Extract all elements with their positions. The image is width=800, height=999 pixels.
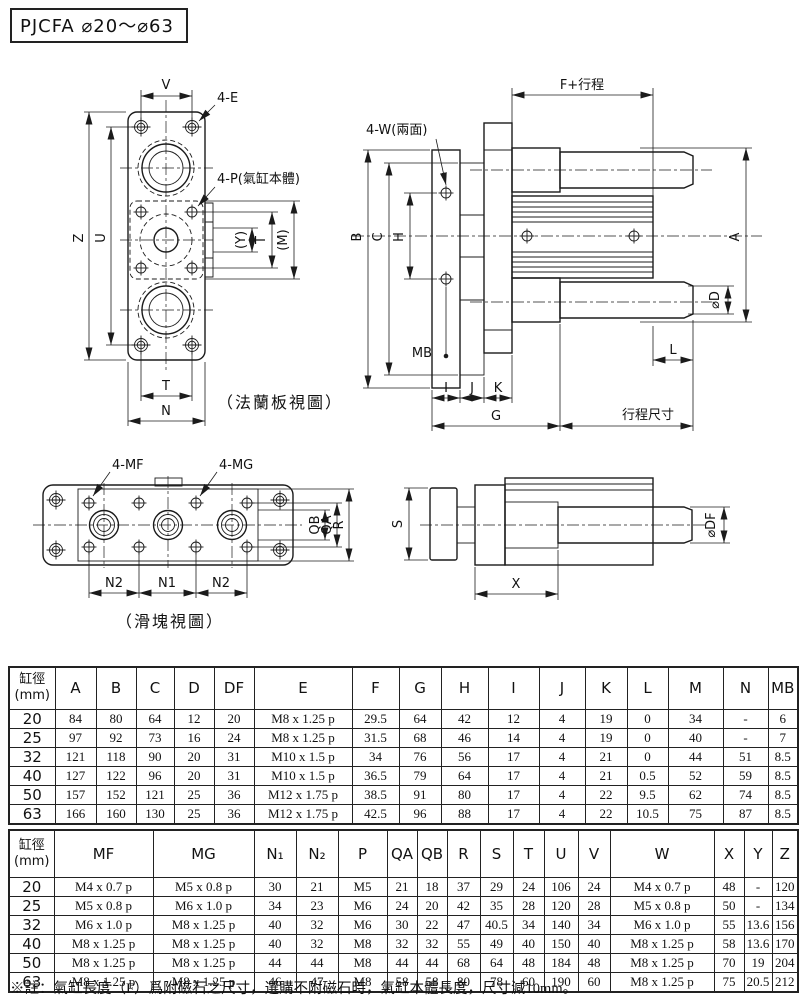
- dimension-value: 22: [585, 785, 627, 804]
- bore-value: 32: [9, 747, 55, 766]
- dimension-value: 10.5: [627, 804, 668, 824]
- dimension-value: 40: [254, 934, 296, 953]
- dimension-value: 8.5: [768, 766, 798, 785]
- dimension-value: 160: [96, 804, 136, 824]
- dimension-value: 25: [174, 785, 214, 804]
- dimension-value: 8.5: [768, 804, 798, 824]
- dimension-value: M8 x 1.25 p: [153, 934, 254, 953]
- dimension-value: M8 x 1.25 p: [153, 953, 254, 972]
- dimension-value: M10 x 1.5 p: [254, 747, 352, 766]
- dimension-value: 21: [585, 766, 627, 785]
- dimension-value: 40.5: [480, 915, 513, 934]
- dimension-value: M8: [338, 953, 387, 972]
- dimension-value: 31.5: [352, 728, 399, 747]
- dimension-value: M6 x 1.0 p: [54, 915, 153, 934]
- dimension-value: 50: [714, 896, 744, 915]
- dimension-value: 204: [772, 953, 798, 972]
- dimension-value: 68: [399, 728, 441, 747]
- column-header-10: U: [544, 830, 578, 877]
- dimension-value: 48: [513, 953, 544, 972]
- dim-label-j: J: [469, 381, 474, 396]
- dimension-value: 0: [627, 709, 668, 728]
- dimension-value: 120: [544, 896, 578, 915]
- dimension-value: -: [744, 896, 772, 915]
- column-header-6: QB: [417, 830, 447, 877]
- dimension-value: M5 x 0.8 p: [610, 896, 714, 915]
- dimension-value: 6: [768, 709, 798, 728]
- dimension-value: 88: [441, 804, 488, 824]
- dimension-value: 17: [488, 747, 539, 766]
- column-header-14: Y: [744, 830, 772, 877]
- column-header-4: P: [338, 830, 387, 877]
- flange-view-drawing: V 4-E Z U 4-P(氣缸本體) (Y) T (M): [72, 78, 343, 426]
- dimension-value: 21: [585, 747, 627, 766]
- column-header-14: N: [723, 667, 768, 709]
- dimension-value: 25: [174, 804, 214, 824]
- dimension-value: 184: [544, 953, 578, 972]
- dimension-value: 12: [488, 709, 539, 728]
- dimension-value: 96: [136, 766, 174, 785]
- column-header-3: D: [174, 667, 214, 709]
- label-4e: 4-E: [217, 91, 238, 106]
- dimension-value: -: [744, 877, 772, 896]
- dimension-value: 90: [136, 747, 174, 766]
- dimension-value: 52: [668, 766, 723, 785]
- dim-label-r: R: [332, 520, 347, 529]
- dimension-value: 4: [539, 785, 585, 804]
- dimension-value: 127: [55, 766, 96, 785]
- dim-label-z: Z: [72, 233, 87, 242]
- dimension-value: 49: [480, 934, 513, 953]
- dimension-value: 34: [578, 915, 610, 934]
- table-row: 208480641220M8 x 1.25 p29.5644212419034-…: [9, 709, 798, 728]
- column-header-13: M: [668, 667, 723, 709]
- dimension-value: 22: [417, 915, 447, 934]
- dimension-value: 134: [772, 896, 798, 915]
- dimension-value: 44: [417, 953, 447, 972]
- dimension-value: 91: [399, 785, 441, 804]
- dimension-value: 7: [768, 728, 798, 747]
- dimension-value: 37: [447, 877, 480, 896]
- column-header-1: B: [96, 667, 136, 709]
- dimension-value: 40: [578, 934, 610, 953]
- dimension-value: 170: [772, 934, 798, 953]
- dimension-value: 18: [417, 877, 447, 896]
- dimension-value: 96: [399, 804, 441, 824]
- dimension-value: 20: [214, 709, 254, 728]
- dimension-value: 20: [417, 896, 447, 915]
- dimension-value: 64: [136, 709, 174, 728]
- dimension-value: 73: [136, 728, 174, 747]
- dimension-value: 21: [387, 877, 417, 896]
- dim-label-a: A: [728, 232, 743, 241]
- dimension-value: 121: [136, 785, 174, 804]
- dimension-value: 0.5: [627, 766, 668, 785]
- dimension-value: 118: [96, 747, 136, 766]
- column-header-15: MB: [768, 667, 798, 709]
- dimension-value: 130: [136, 804, 174, 824]
- dimensions-table-1: 缸徑(mm)ABCDDFEFGHIJKLMNMB208480641220M8 x…: [8, 666, 799, 825]
- dimension-value: 140: [544, 915, 578, 934]
- dimension-value: M6: [338, 896, 387, 915]
- dim-label-x: X: [512, 577, 521, 592]
- dim-label-t-right: T: [254, 236, 269, 245]
- dimension-value: 70: [714, 953, 744, 972]
- dimension-value: 55: [447, 934, 480, 953]
- dimension-value: M8: [338, 934, 387, 953]
- dimension-value: 152: [96, 785, 136, 804]
- label-4mf: 4-MF: [112, 458, 144, 473]
- table-row: 501571521212536M12 x 1.75 p38.5918017422…: [9, 785, 798, 804]
- table-row: 259792731624M8 x 1.25 p31.5684614419040-…: [9, 728, 798, 747]
- bore-value: 25: [9, 728, 55, 747]
- dimension-value: 55: [714, 915, 744, 934]
- column-header-2: N₁: [254, 830, 296, 877]
- dimension-value: 16: [174, 728, 214, 747]
- dimension-value: 47: [447, 915, 480, 934]
- dimension-value: 44: [296, 953, 338, 972]
- dimension-value: 68: [447, 953, 480, 972]
- dimension-value: 30: [387, 915, 417, 934]
- dimension-value: 4: [539, 804, 585, 824]
- bore-value: 40: [9, 934, 54, 953]
- dimension-value: 80: [441, 785, 488, 804]
- bore-value: 25: [9, 896, 54, 915]
- dimension-value: 28: [578, 896, 610, 915]
- table-row: 20M4 x 0.7 pM5 x 0.8 p3021M5211837292410…: [9, 877, 798, 896]
- dimension-value: 29: [480, 877, 513, 896]
- dim-label-n1: N1: [158, 576, 176, 591]
- dimension-value: M8 x 1.25 p: [610, 972, 714, 992]
- dimension-value: 4: [539, 728, 585, 747]
- dimension-value: 34: [352, 747, 399, 766]
- dimension-value: 74: [723, 785, 768, 804]
- dim-label-k: K: [494, 381, 503, 396]
- dimension-value: 56: [441, 747, 488, 766]
- dimension-value: M6 x 1.0 p: [153, 896, 254, 915]
- dimension-value: 36.5: [352, 766, 399, 785]
- dimension-value: 79: [399, 766, 441, 785]
- label-4p: 4-P(氣缸本體): [217, 171, 300, 187]
- bore-value: 50: [9, 785, 55, 804]
- dim-label-u: U: [94, 233, 109, 243]
- column-header-0: A: [55, 667, 96, 709]
- dimension-value: M12 x 1.75 p: [254, 804, 352, 824]
- dimension-value: 75: [668, 804, 723, 824]
- dimension-value: 0: [627, 728, 668, 747]
- label-4w: 4-W(兩面): [366, 123, 427, 138]
- dimension-value: -: [723, 728, 768, 747]
- slider-side-view-drawing: S ⌀DF X: [391, 478, 730, 600]
- dimension-value: 22: [585, 804, 627, 824]
- column-header-3: N₂: [296, 830, 338, 877]
- dimension-value: 64: [441, 766, 488, 785]
- dimension-value: 19: [585, 728, 627, 747]
- bore-value: 20: [9, 877, 54, 896]
- dim-label-m: (M): [276, 229, 291, 250]
- dim-label-l: L: [669, 343, 677, 358]
- dimension-value: M5 x 0.8 p: [54, 896, 153, 915]
- dimension-value: 34: [668, 709, 723, 728]
- dimension-value: M8 x 1.25 p: [254, 728, 352, 747]
- dimension-value: 38.5: [352, 785, 399, 804]
- column-header-1: MG: [153, 830, 254, 877]
- table-row: 32121118902031M10 x 1.5 p347656174210445…: [9, 747, 798, 766]
- dimension-value: 24: [214, 728, 254, 747]
- footnote: ※註：氣缸長度（F）爲附磁石之尺寸，選購不附磁石時，氣缸本體長度，尺寸減10mm…: [10, 977, 577, 998]
- dimension-value: 40: [254, 915, 296, 934]
- dimension-value: 76: [399, 747, 441, 766]
- dim-label-d: ⌀D: [708, 291, 723, 309]
- dimension-value: 34: [513, 915, 544, 934]
- bore-diameter-header: 缸徑(mm): [9, 830, 54, 877]
- dim-label-df: ⌀DF: [704, 512, 719, 537]
- table-row: 50M8 x 1.25 pM8 x 1.25 p4444M84444686448…: [9, 953, 798, 972]
- dimension-value: 121: [55, 747, 96, 766]
- table-row: 631661601302536M12 x 1.75 p42.5968817422…: [9, 804, 798, 824]
- dimension-value: 17: [488, 804, 539, 824]
- dimension-value: 32: [296, 915, 338, 934]
- column-header-0: MF: [54, 830, 153, 877]
- dimension-value: M6 x 1.0 p: [610, 915, 714, 934]
- dimension-value: M12 x 1.75 p: [254, 785, 352, 804]
- dim-label-f-stroke: F+行程: [560, 78, 604, 93]
- dim-label-b: B: [350, 233, 365, 242]
- datasheet-page: PJCFA ⌀20～⌀63: [0, 0, 800, 999]
- dimension-value: 122: [96, 766, 136, 785]
- column-header-11: V: [578, 830, 610, 877]
- bore-value: 32: [9, 915, 54, 934]
- table-row: 40127122962031M10 x 1.5 p36.57964174210.…: [9, 766, 798, 785]
- bore-value: 40: [9, 766, 55, 785]
- column-header-15: Z: [772, 830, 798, 877]
- column-header-8: H: [441, 667, 488, 709]
- dimension-value: 19: [744, 953, 772, 972]
- dimension-value: 32: [387, 934, 417, 953]
- dimension-value: 44: [387, 953, 417, 972]
- dimension-value: 31: [214, 766, 254, 785]
- dimension-value: 8.5: [768, 785, 798, 804]
- dimension-value: 59: [723, 766, 768, 785]
- dimension-value: 12: [174, 709, 214, 728]
- dimension-value: M10 x 1.5 p: [254, 766, 352, 785]
- dimension-value: M8 x 1.25 p: [153, 915, 254, 934]
- dimension-value: 42: [441, 709, 488, 728]
- dimension-value: 20: [174, 766, 214, 785]
- dim-label-n2-right: N2: [212, 576, 230, 591]
- dimension-value: 87: [723, 804, 768, 824]
- table-row: 32M6 x 1.0 pM8 x 1.25 p4032M630224740.53…: [9, 915, 798, 934]
- dimension-value: 20.5: [744, 972, 772, 992]
- dimension-value: 97: [55, 728, 96, 747]
- flange-view-caption: （法蘭板視圖）: [217, 394, 343, 412]
- label-4mg: 4-MG: [219, 458, 253, 473]
- dimension-value: 120: [772, 877, 798, 896]
- dim-label-h: H: [392, 232, 407, 242]
- dimension-value: 8.5: [768, 747, 798, 766]
- dimension-value: 42: [447, 896, 480, 915]
- dimension-value: 17: [488, 785, 539, 804]
- slider-view-caption: （滑塊視圖）: [116, 613, 224, 631]
- dimension-value: 64: [480, 953, 513, 972]
- dimension-value: 64: [399, 709, 441, 728]
- dim-label-stroke-size: 行程尺寸: [622, 408, 674, 423]
- dimension-value: 23: [296, 896, 338, 915]
- column-header-9: T: [513, 830, 544, 877]
- dimension-value: M8 x 1.25 p: [54, 953, 153, 972]
- dimension-value: 84: [55, 709, 96, 728]
- dimension-value: 58: [714, 934, 744, 953]
- dimension-value: 14: [488, 728, 539, 747]
- dim-label-y: (Y): [234, 231, 249, 249]
- dimension-value: 35: [480, 896, 513, 915]
- dimension-value: -: [723, 709, 768, 728]
- dimension-value: 4: [539, 747, 585, 766]
- dimension-value: 40: [668, 728, 723, 747]
- dimensions-table-2: 缸徑(mm)MFMGN₁N₂PQAQBRSTUVWXYZ20M4 x 0.7 p…: [8, 829, 799, 993]
- dimension-value: 17: [488, 766, 539, 785]
- dimension-value: 24: [513, 877, 544, 896]
- dimension-value: 24: [578, 877, 610, 896]
- dimension-value: 32: [296, 934, 338, 953]
- dimension-value: 13.6: [744, 915, 772, 934]
- dimension-value: 166: [55, 804, 96, 824]
- dimension-value: 9.5: [627, 785, 668, 804]
- table-row: 40M8 x 1.25 pM8 x 1.25 p4032M83232554940…: [9, 934, 798, 953]
- bore-value: 50: [9, 953, 54, 972]
- column-header-5: E: [254, 667, 352, 709]
- column-header-7: R: [447, 830, 480, 877]
- dim-label-g: G: [491, 409, 501, 424]
- dimension-value: 42.5: [352, 804, 399, 824]
- dimension-value: 62: [668, 785, 723, 804]
- dim-label-v: V: [162, 78, 171, 93]
- dimension-value: M6: [338, 915, 387, 934]
- dim-label-s: S: [391, 520, 406, 528]
- dimension-value: 36: [214, 785, 254, 804]
- dimension-value: 29.5: [352, 709, 399, 728]
- dimension-value: 60: [578, 972, 610, 992]
- column-header-7: G: [399, 667, 441, 709]
- dimension-value: 13.6: [744, 934, 772, 953]
- dimension-value: 0: [627, 747, 668, 766]
- dimension-value: M4 x 0.7 p: [54, 877, 153, 896]
- dimension-value: 40: [513, 934, 544, 953]
- dimension-value: 48: [714, 877, 744, 896]
- dimension-value: 44: [668, 747, 723, 766]
- dimension-value: 46: [441, 728, 488, 747]
- column-header-6: F: [352, 667, 399, 709]
- dimension-value: M8 x 1.25 p: [54, 934, 153, 953]
- table-row: 25M5 x 0.8 pM6 x 1.0 p3423M6242042352812…: [9, 896, 798, 915]
- dimension-value: M8 x 1.25 p: [254, 709, 352, 728]
- dimension-value: 21: [296, 877, 338, 896]
- dimension-value: 32: [417, 934, 447, 953]
- dimension-value: 156: [772, 915, 798, 934]
- column-header-4: DF: [214, 667, 254, 709]
- column-header-12: W: [610, 830, 714, 877]
- dimension-value: 92: [96, 728, 136, 747]
- dimension-value: 30: [254, 877, 296, 896]
- dim-label-t-bottom: T: [161, 379, 170, 394]
- dimension-value: 28: [513, 896, 544, 915]
- column-header-9: I: [488, 667, 539, 709]
- bore-value: 20: [9, 709, 55, 728]
- dimension-value: 36: [214, 804, 254, 824]
- dimension-value: M8 x 1.25 p: [610, 953, 714, 972]
- column-header-5: QA: [387, 830, 417, 877]
- dimension-value: 20: [174, 747, 214, 766]
- bore-diameter-header: 缸徑(mm): [9, 667, 55, 709]
- dimension-value: 51: [723, 747, 768, 766]
- column-header-2: C: [136, 667, 174, 709]
- dimension-value: 24: [387, 896, 417, 915]
- dimension-value: 106: [544, 877, 578, 896]
- dimension-value: 157: [55, 785, 96, 804]
- dimension-value: 80: [96, 709, 136, 728]
- dimension-value: 34: [254, 896, 296, 915]
- dimension-value: M4 x 0.7 p: [610, 877, 714, 896]
- dim-label-i: I: [444, 381, 448, 396]
- dim-label-n2-left: N2: [105, 576, 123, 591]
- dimension-value: 150: [544, 934, 578, 953]
- side-view-drawing: F+行程 4-W(兩面) B C H A ⌀D MB: [350, 78, 762, 431]
- column-header-12: L: [627, 667, 668, 709]
- column-header-8: S: [480, 830, 513, 877]
- dimension-value: 48: [578, 953, 610, 972]
- dim-label-mb: MB: [412, 346, 432, 361]
- dimension-value: M5 x 0.8 p: [153, 877, 254, 896]
- dim-label-c: C: [371, 232, 386, 241]
- dimension-value: 4: [539, 766, 585, 785]
- dimension-value: 212: [772, 972, 798, 992]
- slider-view-drawing: 4-MF 4-MG QB QA R N2 N1 N2 （滑塊視圖）: [33, 458, 354, 631]
- dimension-value: 31: [214, 747, 254, 766]
- technical-drawing: V 4-E Z U 4-P(氣缸本體) (Y) T (M): [0, 30, 800, 666]
- column-header-11: K: [585, 667, 627, 709]
- dimension-value: M8 x 1.25 p: [610, 934, 714, 953]
- column-header-10: J: [539, 667, 585, 709]
- dim-label-n: N: [161, 404, 171, 419]
- column-header-13: X: [714, 830, 744, 877]
- dimension-value: 19: [585, 709, 627, 728]
- dimension-value: 4: [539, 709, 585, 728]
- bore-value: 63: [9, 804, 55, 824]
- dimension-value: M5: [338, 877, 387, 896]
- dimension-value: 44: [254, 953, 296, 972]
- dimension-value: 75: [714, 972, 744, 992]
